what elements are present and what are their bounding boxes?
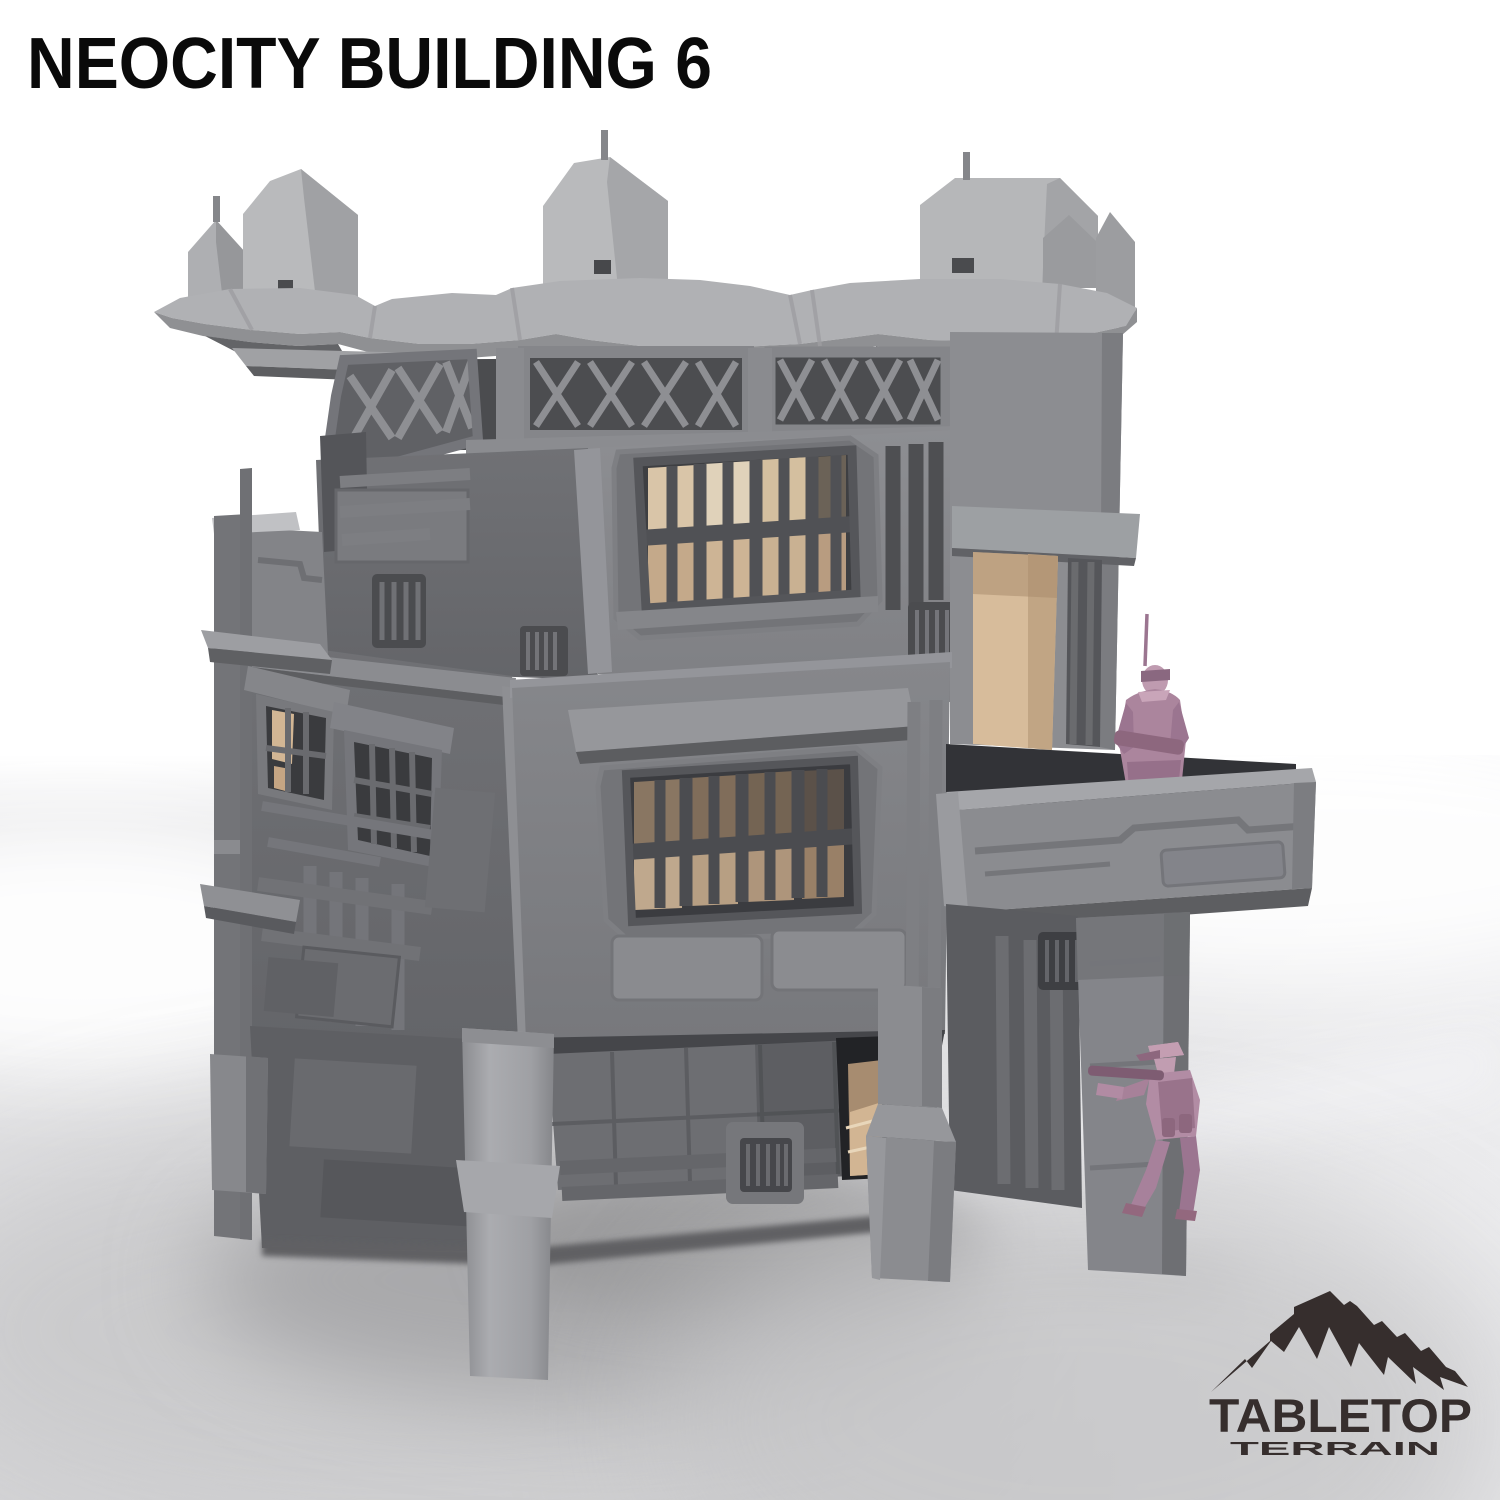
svg-text:TABLETOP: TABLETOP bbox=[1209, 1389, 1472, 1442]
svg-text:NEOCITY BUILDING 6: NEOCITY BUILDING 6 bbox=[27, 24, 712, 104]
svg-text:TERRAIN: TERRAIN bbox=[1230, 1439, 1440, 1459]
